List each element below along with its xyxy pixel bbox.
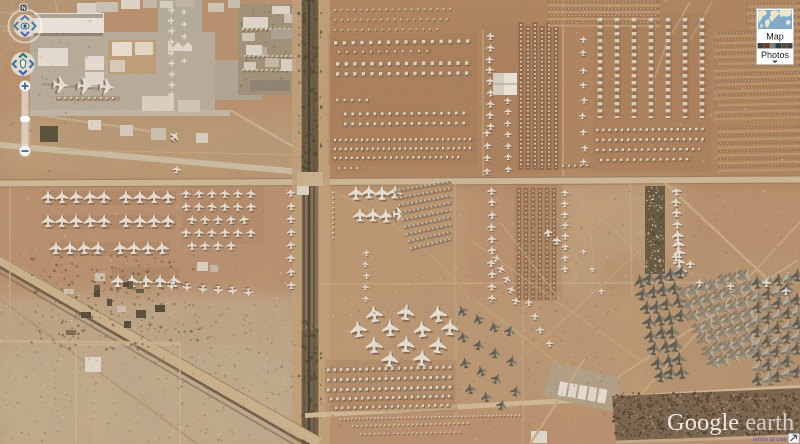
svg-text:Map: Map xyxy=(766,32,784,42)
svg-text:Terms of Use: Terms of Use xyxy=(752,437,788,443)
svg-text:Google earth: Google earth xyxy=(667,409,794,436)
svg-text:N: N xyxy=(21,6,25,12)
svg-text:Photos: Photos xyxy=(761,50,790,60)
